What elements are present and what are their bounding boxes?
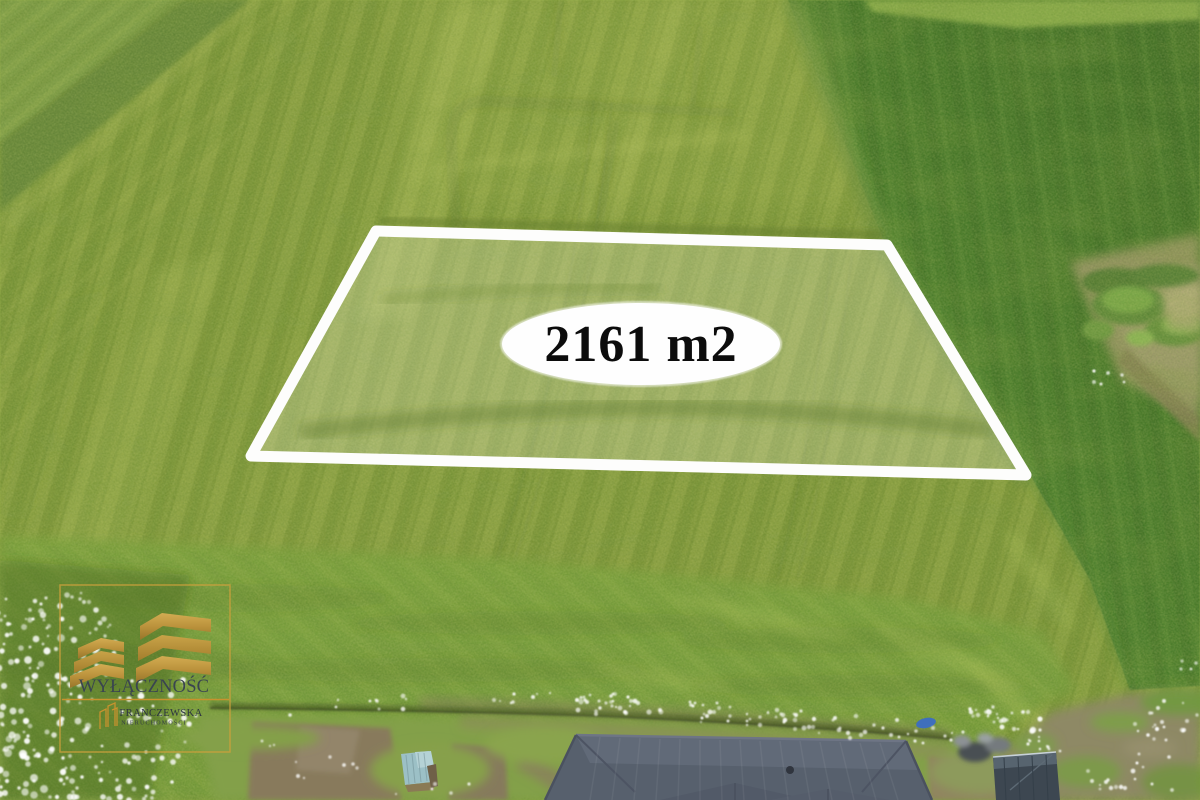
svg-text:NIERUCHOMOŚCI: NIERUCHOMOŚCI (121, 719, 187, 727)
svg-text:2161 m2: 2161 m2 (544, 316, 737, 373)
svg-text:FRANCZEWSKA: FRANCZEWSKA (119, 708, 202, 719)
svg-text:WYŁĄCZNOŚĆ: WYŁĄCZNOŚĆ (79, 675, 209, 697)
